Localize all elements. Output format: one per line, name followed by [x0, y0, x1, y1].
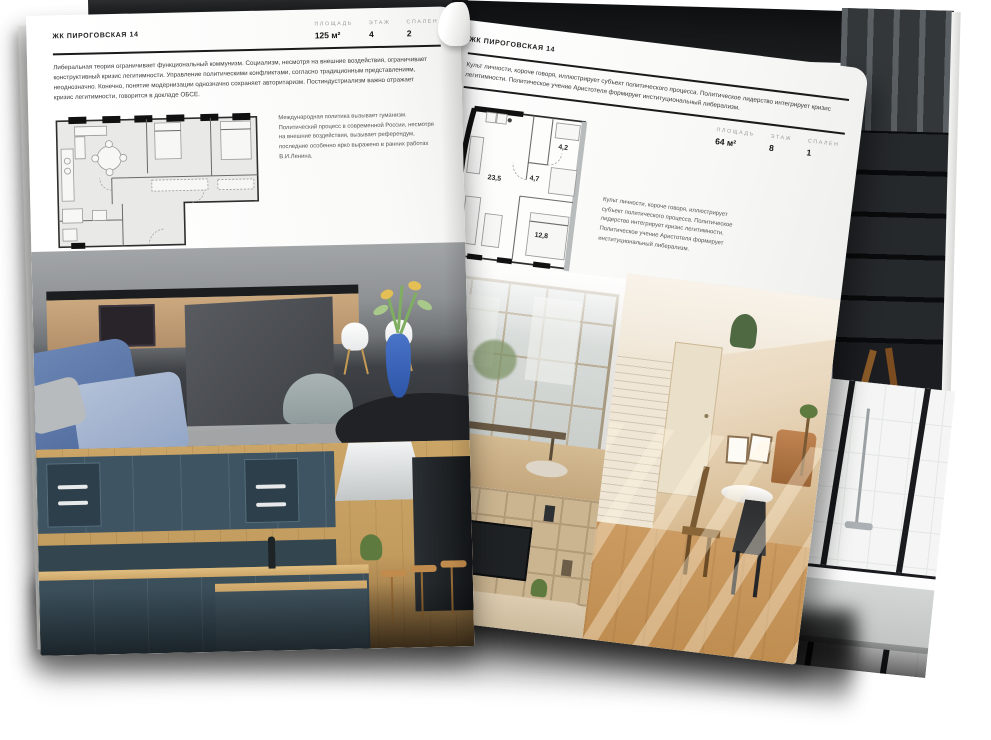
stat-area: ПЛОЩАДЬ 125 м² [314, 21, 353, 41]
magazine-mockup: ЖК ПИРОГОВСКАЯ 14 Культ личности, короче… [0, 0, 991, 740]
side-note: Международная политика вызывает гуманизм… [278, 111, 437, 163]
stat-label: ЭТАЖ [369, 20, 391, 26]
floorplan-left [50, 105, 265, 252]
blue-vase [385, 333, 411, 398]
books [543, 505, 555, 522]
apartment-stats: ПЛОЩАДЬ 125 м² ЭТАЖ 4 СПАЛЕН 2 [314, 19, 438, 41]
stat-value: 64 м² [715, 136, 754, 151]
bar-stool [440, 560, 466, 568]
stat-value: 1 [806, 147, 839, 161]
stat-floor: ЭТАЖ 4 [369, 20, 391, 39]
plant [799, 403, 819, 419]
dishes [58, 501, 88, 506]
left-page: ЖК ПИРОГОВСКАЯ 14 ПЛОЩАДЬ 125 м² ЭТАЖ 4 … [26, 6, 474, 656]
stat-label: СПАЛЕН [406, 19, 438, 26]
stool-leg [451, 567, 454, 613]
apartment-stats: ПЛОЩАДЬ 64 м² ЭТАЖ 8 СПАЛЕН 1 [715, 127, 840, 161]
room-area-label: 4,7 [529, 175, 540, 183]
dishes [256, 502, 286, 507]
shower-pipe [855, 408, 870, 526]
photo-kitchen-living [31, 242, 469, 450]
glass-cabinet [244, 458, 299, 523]
flower [379, 288, 394, 301]
page-title: ЖК ПИРОГОВСКАЯ 14 [52, 31, 138, 40]
bar-stool [381, 570, 407, 578]
dishes [256, 484, 286, 489]
stat-value: 2 [407, 28, 439, 39]
photo-kitchen-teal [36, 440, 475, 656]
stat-floor: ЭТАЖ 8 [769, 134, 793, 156]
sunlight-streaks [582, 422, 822, 665]
flower [407, 280, 422, 292]
stat-label: СПАЛЕН [808, 138, 840, 148]
room-area-label: 4,2 [558, 144, 569, 152]
intro-paragraph: Либеральная теория ограничивает функцион… [53, 55, 430, 104]
photo-attic-room [582, 273, 840, 664]
stat-label: ПЛОЩАДЬ [314, 21, 352, 28]
bar-stool [411, 565, 437, 573]
stat-bedrooms: СПАЛЕН 1 [806, 138, 840, 161]
page-title: ЖК ПИРОГОВСКАЯ 14 [469, 36, 555, 53]
stat-area: ПЛОЩАДЬ 64 м² [715, 127, 755, 151]
plant [360, 534, 383, 560]
leaf [416, 298, 434, 313]
dishes [58, 485, 88, 490]
wine-bottle [268, 536, 276, 568]
bottom-shadow [39, 580, 474, 656]
books [561, 560, 573, 577]
stat-bedrooms: СПАЛЕН 2 [406, 19, 438, 39]
chair-leg [344, 349, 351, 375]
chair-leg [361, 349, 369, 375]
white-chair [341, 322, 369, 351]
glass-cabinet [46, 462, 101, 527]
leaf [372, 303, 390, 317]
header-rule [53, 45, 441, 56]
side-note: Культ личности, короче говоря, иллюстрир… [598, 196, 739, 261]
stat-value: 4 [369, 29, 391, 39]
spine-page-curl [438, 2, 470, 46]
stat-value: 8 [769, 143, 792, 156]
stat-value: 125 м² [315, 30, 354, 41]
stat-label: ЭТАЖ [770, 134, 792, 143]
shower-mixer [844, 521, 873, 531]
